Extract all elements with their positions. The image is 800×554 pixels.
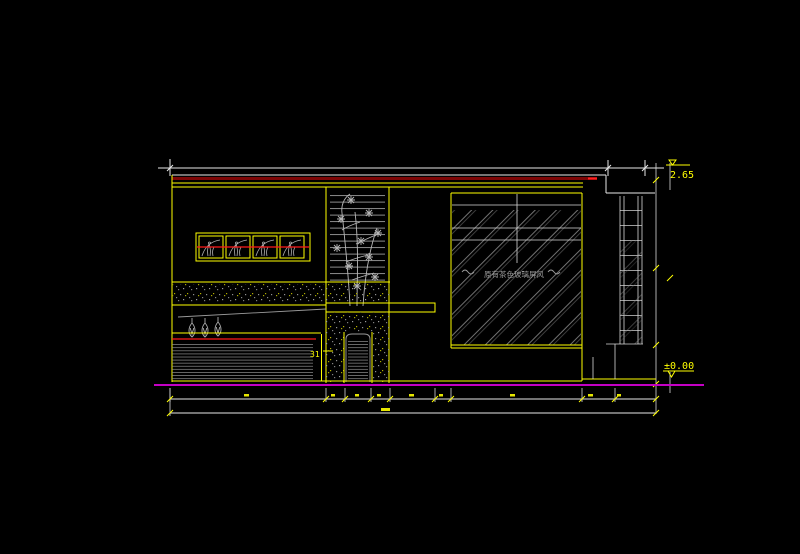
dark-red-cornice <box>172 177 597 180</box>
door-slats <box>348 341 368 381</box>
level-value-top: 2.65 <box>670 170 694 181</box>
glass-note: 原有茶色玻璃屏风 <box>484 269 544 279</box>
level-value-bottom: ±0.00 <box>664 361 694 372</box>
black-background <box>0 0 800 554</box>
stipple-band <box>172 282 390 305</box>
elevation-drawing: 2.65 ±0.00 <box>0 0 800 554</box>
section-mark-label: 31 <box>310 350 320 359</box>
door-column <box>326 312 389 383</box>
cad-canvas: 2.65 ±0.00 <box>0 0 800 554</box>
